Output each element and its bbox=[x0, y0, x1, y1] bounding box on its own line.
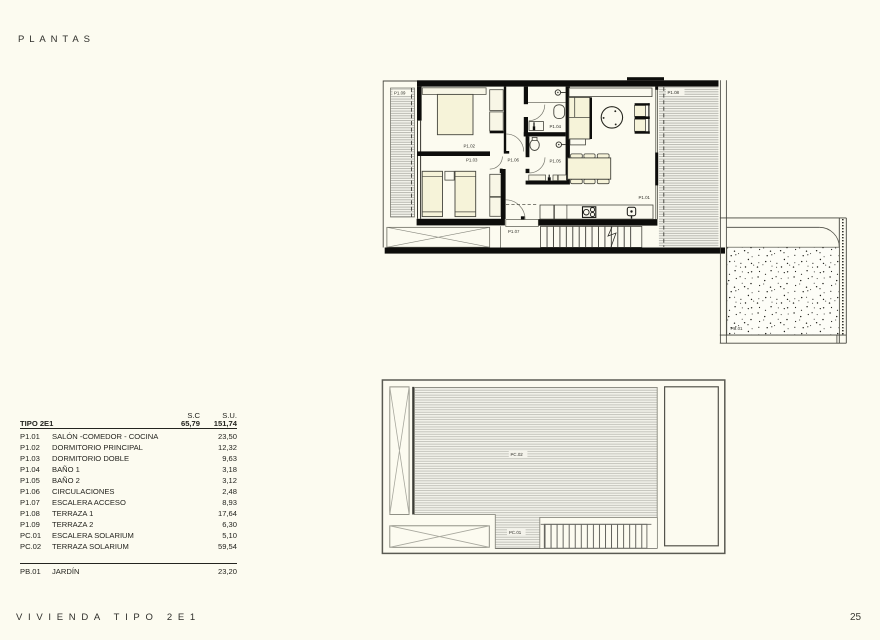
svg-text:P1.02: P1.02 bbox=[464, 143, 476, 148]
svg-text:P1.01: P1.01 bbox=[639, 195, 651, 200]
svg-text:P1.06: P1.06 bbox=[508, 158, 520, 163]
svg-text:PC.01: PC.01 bbox=[509, 530, 521, 535]
svg-text:PC.02: PC.02 bbox=[511, 452, 523, 457]
svg-text:P1.07: P1.07 bbox=[508, 229, 520, 234]
svg-text:P1.09: P1.09 bbox=[394, 91, 406, 96]
svg-text:PB.01: PB.01 bbox=[731, 326, 743, 331]
svg-text:P1.05: P1.05 bbox=[550, 159, 562, 164]
svg-text:P1.08: P1.08 bbox=[668, 90, 680, 95]
svg-text:P1.03: P1.03 bbox=[466, 158, 478, 163]
svg-text:P1.04: P1.04 bbox=[550, 124, 562, 129]
